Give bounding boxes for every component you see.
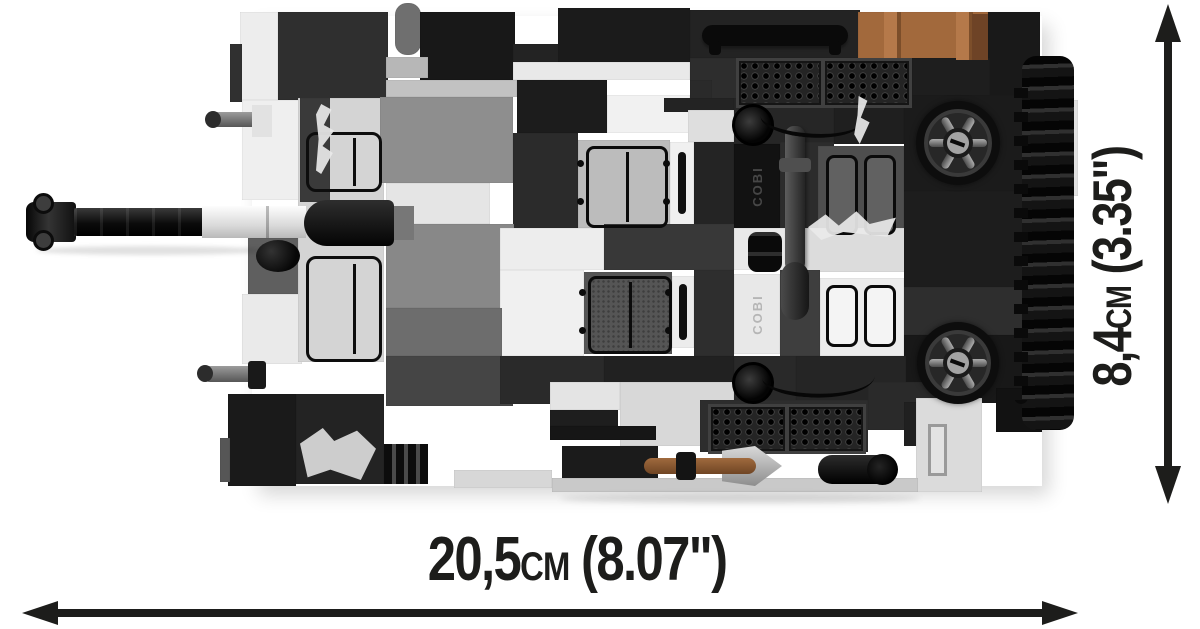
antenna-base	[781, 262, 809, 320]
brick-block	[550, 426, 656, 440]
arrowhead-right-icon	[1042, 601, 1078, 625]
brick-block	[550, 410, 618, 426]
height-metric-value: 8,4	[1081, 329, 1143, 387]
ribbed-vent-brick	[384, 444, 428, 484]
engine-grille	[708, 404, 788, 454]
brick-block	[420, 12, 515, 80]
gun-barrel	[74, 208, 206, 236]
tool-clamp	[676, 452, 696, 480]
width-dimension-label: 20,5cm(8.07")	[287, 524, 867, 596]
brick-block	[604, 224, 734, 270]
brick-block	[558, 8, 690, 62]
brick-block	[380, 97, 513, 183]
brick-block	[228, 394, 296, 486]
cobi-logo-text: COBI	[750, 294, 765, 335]
cobi-logo-tile: COBI	[734, 144, 780, 228]
periscope-stack	[748, 232, 782, 272]
cobi-logo-text: COBI	[750, 166, 765, 207]
brick-block	[242, 294, 302, 364]
vent-slot	[678, 152, 686, 214]
wheel-hub	[943, 348, 973, 378]
brick-block	[386, 308, 502, 356]
cobi-logo-tile: COBI	[734, 274, 780, 354]
spare-track-links	[1022, 56, 1074, 430]
brick-block	[517, 80, 607, 133]
crew-hatch-print	[588, 276, 672, 354]
product-dimension-diagram: COBI COBI 20,5cm(8.07")	[0, 0, 1200, 629]
brick-block	[386, 57, 428, 78]
brick-block	[513, 44, 561, 62]
arrowhead-left-icon	[22, 601, 58, 625]
width-imperial-value: (8.07")	[581, 525, 726, 594]
wooden-crate-side	[972, 14, 988, 60]
engine-grille	[736, 58, 824, 108]
brick-block	[230, 44, 242, 102]
brick-block	[694, 142, 734, 228]
tow-hook-mount	[252, 105, 272, 137]
height-dimension-label: 8,4cm(3.35")	[1083, 67, 1141, 467]
brick-block	[240, 12, 278, 100]
brick-block	[500, 270, 584, 356]
exhaust-cylinder	[818, 455, 892, 484]
arrowhead-up-icon	[1155, 4, 1181, 42]
brick-block	[513, 133, 578, 228]
height-dimension-arrow	[1155, 4, 1181, 504]
wooden-crate-ridge	[884, 12, 901, 60]
antenna-collar	[779, 158, 811, 172]
arrowhead-down-icon	[1155, 466, 1181, 504]
engine-grille	[822, 58, 912, 108]
brick-block	[916, 398, 982, 492]
gun-mantlet	[304, 200, 394, 246]
spare-road-wheel	[916, 101, 1000, 185]
gun-barrel-white-section	[202, 206, 306, 238]
tow-cable-handle	[702, 25, 848, 46]
height-imperial-value: (3.35")	[1081, 147, 1143, 275]
crew-hatch-print	[586, 146, 668, 228]
brick-block	[694, 270, 734, 356]
mantlet-knob	[256, 240, 300, 272]
spare-road-wheel	[917, 322, 999, 404]
brick-block	[500, 228, 604, 270]
hatch-door-print	[306, 256, 382, 362]
vent-slot	[679, 284, 687, 340]
side-skirt-slot	[928, 424, 947, 476]
brick-block	[454, 470, 552, 488]
drop-shadow	[560, 494, 920, 503]
height-metric-unit: cm	[1100, 286, 1139, 329]
wheel-hub	[943, 128, 973, 158]
width-metric-unit: cm	[520, 545, 569, 589]
gun-muzzle-brake	[26, 202, 76, 242]
arrow-shaft	[1164, 32, 1172, 476]
brick-block	[386, 80, 517, 97]
brick-block	[550, 382, 620, 410]
wooden-crate-ridge	[956, 12, 973, 60]
width-metric-value: 20,5	[428, 525, 520, 594]
antenna	[785, 126, 805, 272]
engine-grille	[786, 404, 866, 454]
brick-block	[386, 356, 513, 406]
barrel-shadow	[36, 246, 266, 255]
brick-block	[688, 110, 734, 142]
engine-hatch-print	[824, 282, 898, 350]
brick-block	[395, 3, 421, 55]
tow-hook-mount	[248, 361, 266, 389]
brick-block	[278, 12, 388, 100]
brick-block	[513, 62, 690, 80]
brick-block	[220, 438, 230, 482]
pry-bar-tool	[644, 458, 756, 474]
